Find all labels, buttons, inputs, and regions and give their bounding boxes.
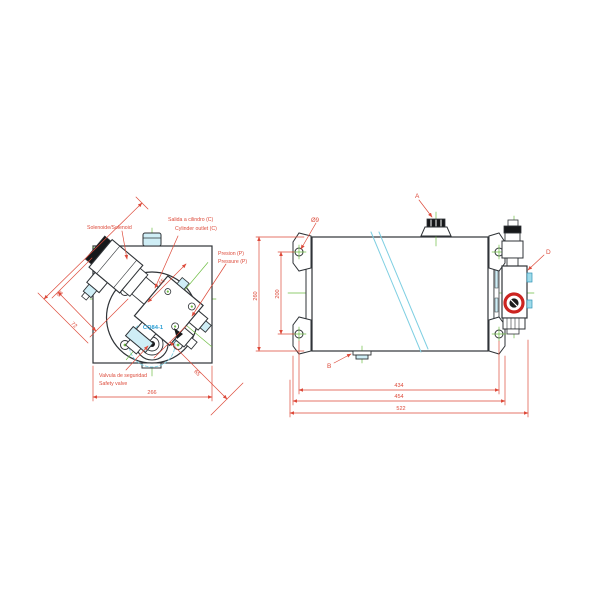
label-pressure-es: Presion (P): [218, 251, 244, 257]
svg-text:522: 522: [396, 406, 405, 412]
valve-port-lower: [527, 300, 532, 308]
label-cylinder-outlet-es: Salida a cilindro (C): [168, 217, 214, 223]
svg-text:260: 260: [253, 291, 259, 300]
label-safety-valve-es: Valvula de seguridad: [99, 373, 147, 379]
svg-text:454: 454: [394, 394, 403, 400]
label-cylinder-outlet-en: Cylinder outlet (C): [175, 226, 217, 232]
valve-port-upper: [527, 273, 532, 282]
callout-d: D: [546, 249, 551, 256]
label-safety-valve-en: Safety valve: [99, 381, 127, 387]
breather-cap: [143, 233, 161, 246]
svg-text:434: 434: [394, 383, 403, 389]
label-solenoid: Solenoide/Solenoid: [87, 225, 132, 231]
callout-a: A: [415, 193, 420, 200]
technical-drawing: CQ84-1 Solenoide/Solenoid Salida a cilin…: [0, 0, 600, 600]
tank-body: [312, 237, 488, 351]
label-pressure-en: Pressure (P): [218, 259, 247, 265]
part-marking-text: CQ84-1: [143, 325, 164, 331]
callout-hole-dia: Ø9: [311, 218, 320, 224]
svg-text:200: 200: [275, 289, 281, 298]
svg-text:266: 266: [147, 390, 156, 396]
callout-b: B: [327, 363, 331, 370]
